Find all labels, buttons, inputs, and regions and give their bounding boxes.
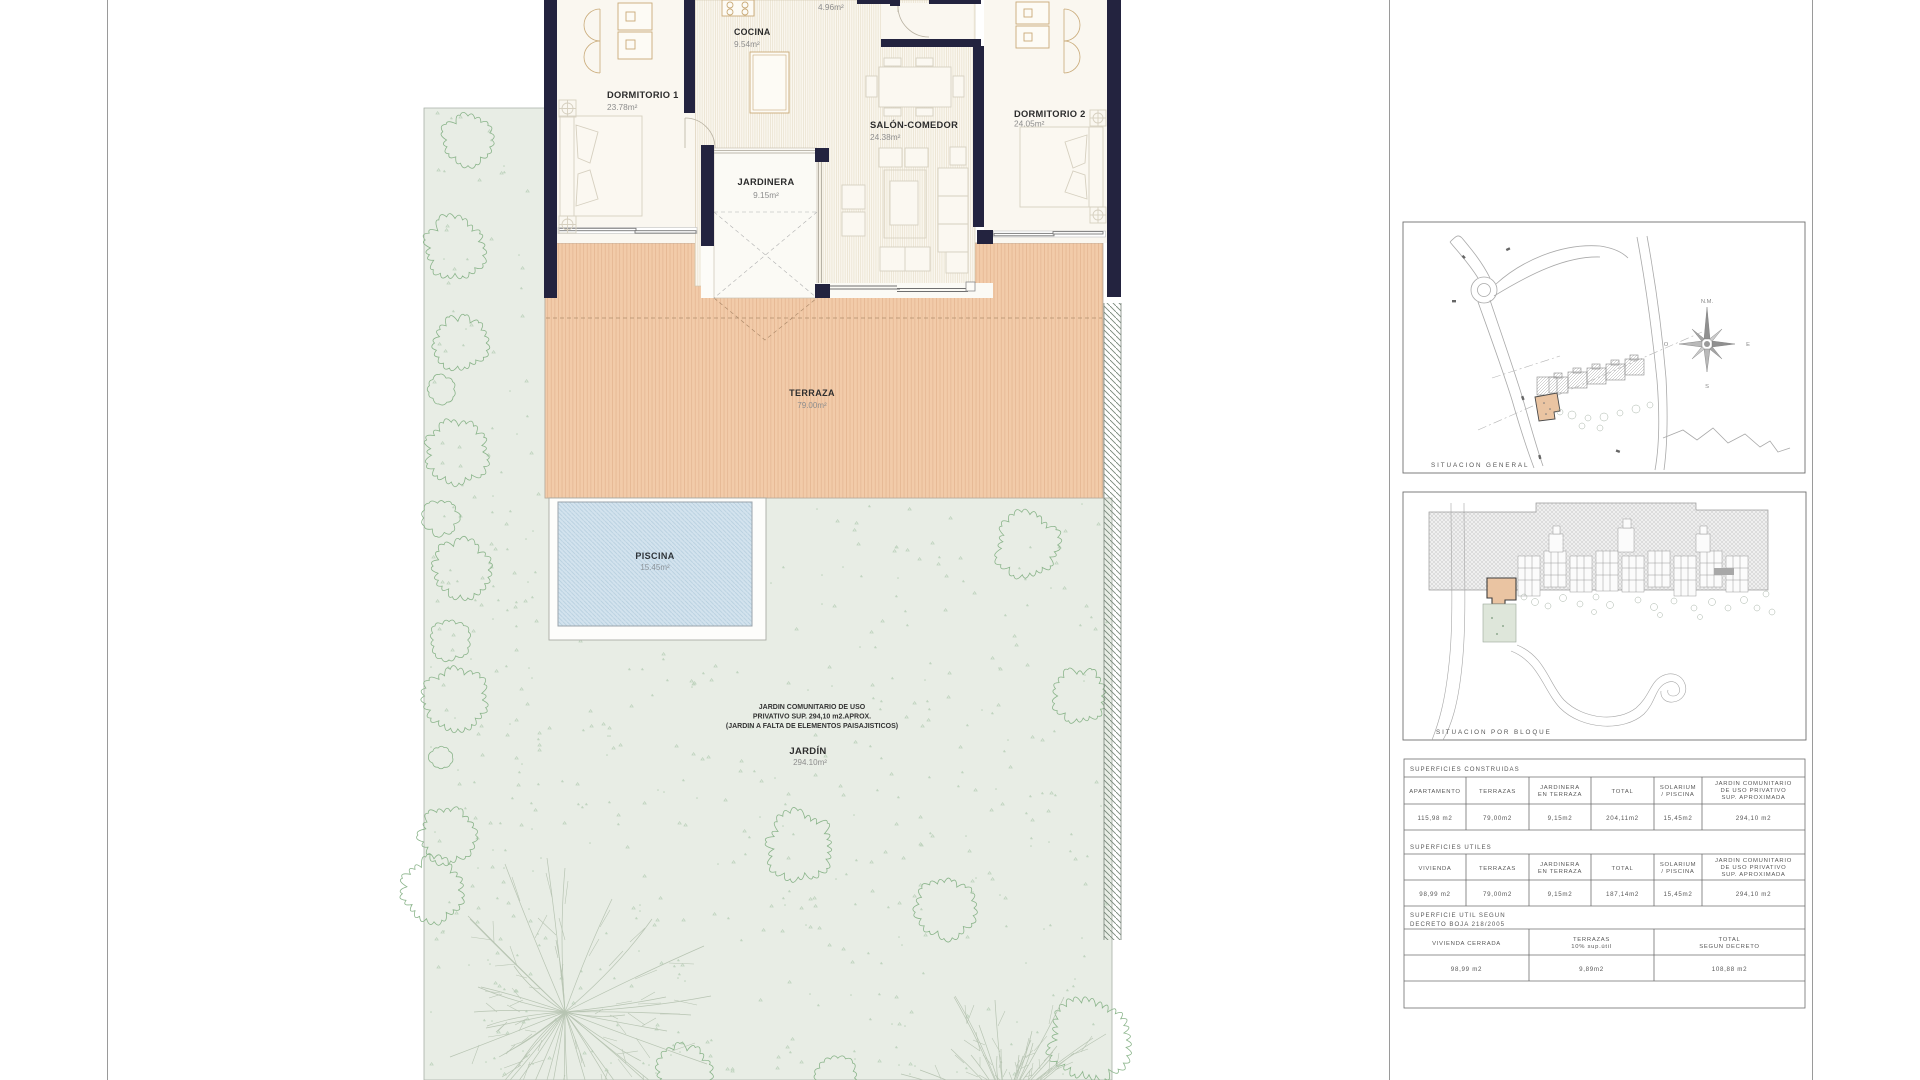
svg-text:9,15m2: 9,15m2 [1548,815,1573,822]
svg-text:DE USO PRIVATIVO: DE USO PRIVATIVO [1721,788,1787,794]
svg-text:294,10 m2: 294,10 m2 [1736,815,1772,822]
svg-text:VIVIENDA CERRADA: VIVIENDA CERRADA [1432,941,1501,947]
svg-text:N.M.: N.M. [1701,299,1714,305]
svg-text:SEGUN DECRETO: SEGUN DECRETO [1699,944,1759,950]
svg-text:204,11m2: 204,11m2 [1606,815,1639,822]
svg-text:JARDÍN: JARDÍN [789,746,826,757]
svg-text:JARDIN COMUNITARIO: JARDIN COMUNITARIO [1715,858,1792,864]
svg-text:SALÓN-COMEDOR: SALÓN-COMEDOR [870,119,958,130]
svg-text:SUPERFICIES UTILES: SUPERFICIES UTILES [1410,844,1492,851]
svg-text:TOTAL: TOTAL [1612,866,1634,872]
svg-text:DECRETO BOJA 218/2005: DECRETO BOJA 218/2005 [1410,921,1505,928]
svg-text:DORMITORIO 1: DORMITORIO 1 [607,90,679,100]
svg-text:294.10m²: 294.10m² [793,758,827,767]
svg-text:23.78m²: 23.78m² [607,102,638,112]
svg-text:/ PISCINA: / PISCINA [1661,792,1694,798]
svg-text:98,99 m2: 98,99 m2 [1419,891,1450,898]
svg-text:79,00m2: 79,00m2 [1483,815,1512,822]
svg-text:COCINA: COCINA [734,27,771,37]
svg-text:JARDINERA: JARDINERA [1540,785,1580,791]
svg-text:SUPERFICIE UTIL SEGUN: SUPERFICIE UTIL SEGUN [1410,912,1506,919]
svg-text:9,89m2: 9,89m2 [1579,966,1604,973]
svg-text:SUP. APROXIMADA: SUP. APROXIMADA [1721,872,1785,878]
svg-text:SOLARIUM: SOLARIUM [1660,785,1696,791]
svg-text:JARDIN COMUNITARIO: JARDIN COMUNITARIO [1715,781,1792,787]
svg-text:VIVIENDA: VIVIENDA [1418,866,1451,872]
svg-text:SUP. APROXIMADA: SUP. APROXIMADA [1721,795,1785,801]
svg-text:JARDIN COMUNITARIO DE USO: JARDIN COMUNITARIO DE USO [759,704,866,711]
svg-text:APARTAMENTO: APARTAMENTO [1409,789,1460,795]
svg-text:PISCINA: PISCINA [635,551,674,561]
svg-text:TERRAZA: TERRAZA [789,388,835,398]
svg-text:294,10 m2: 294,10 m2 [1736,891,1772,898]
svg-text:115,98 m2: 115,98 m2 [1417,815,1452,822]
svg-text:108,88 m2: 108,88 m2 [1712,966,1748,973]
svg-text:79,00m2: 79,00m2 [1483,891,1512,898]
svg-text:4.96m²: 4.96m² [818,2,844,12]
svg-text:9,15m2: 9,15m2 [1548,891,1573,898]
svg-text:SITUACION POR BLOQUE: SITUACION POR BLOQUE [1436,729,1552,736]
svg-text:TERRAZAS: TERRAZAS [1573,937,1610,943]
svg-text:DORMITORIO 2: DORMITORIO 2 [1014,109,1086,119]
svg-text:24.38m²: 24.38m² [870,132,901,142]
svg-text:(JARDIN A FALTA DE ELEMENTOS: (JARDIN A FALTA DE ELEMENTOS PAISAJISTIC… [726,723,898,730]
svg-text:98,99 m2: 98,99 m2 [1451,966,1482,973]
svg-text:15.45m²: 15.45m² [640,563,670,572]
svg-text:15,45m2: 15,45m2 [1664,891,1693,898]
svg-text:O: O [1664,342,1669,348]
svg-text:TERRAZAS: TERRAZAS [1479,789,1516,795]
svg-text:TERRAZAS: TERRAZAS [1479,866,1516,872]
svg-text:10% sup.útil: 10% sup.útil [1571,944,1612,950]
svg-text:/ PISCINA: / PISCINA [1661,869,1694,875]
svg-text:DE USO PRIVATIVO: DE USO PRIVATIVO [1721,865,1787,871]
svg-text:JARDINERA: JARDINERA [738,177,795,187]
svg-text:187,14m2: 187,14m2 [1606,891,1639,898]
svg-text:SOLARIUM: SOLARIUM [1660,862,1696,868]
svg-text:SUPERFICIES CONSTRUIDAS: SUPERFICIES CONSTRUIDAS [1410,766,1520,773]
svg-text:SITUACION GENERAL: SITUACION GENERAL [1431,462,1529,469]
svg-text:15,45m2: 15,45m2 [1664,815,1693,822]
svg-text:PRIVATIVO SUP. 294,10 m2.APRO: PRIVATIVO SUP. 294,10 m2.APROX. [753,714,871,721]
svg-text:79.00m²: 79.00m² [797,401,827,410]
svg-text:TOTAL: TOTAL [1719,937,1741,943]
svg-text:S: S [1705,384,1709,390]
svg-text:E: E [1746,342,1750,348]
svg-text:9.54m²: 9.54m² [734,39,760,49]
svg-text:EN TERRAZA: EN TERRAZA [1538,869,1582,875]
svg-text:JARDINERA: JARDINERA [1540,862,1580,868]
svg-text:TOTAL: TOTAL [1612,789,1634,795]
svg-text:EN TERRAZA: EN TERRAZA [1538,792,1582,798]
svg-text:9.15m²: 9.15m² [753,190,779,200]
